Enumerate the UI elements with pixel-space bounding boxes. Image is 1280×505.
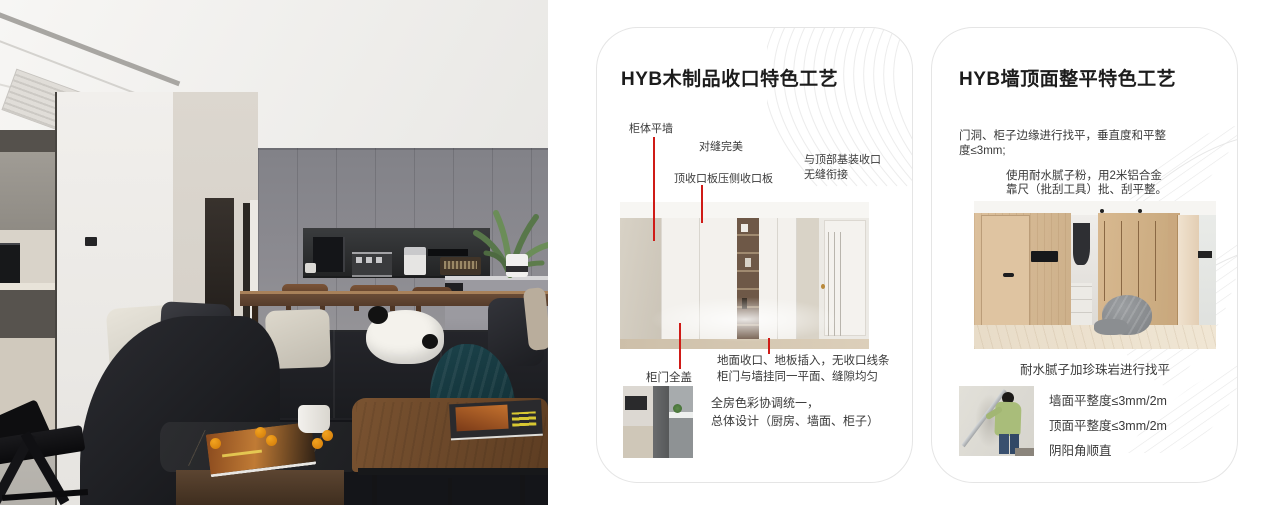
intercom-panel (1031, 251, 1058, 262)
thumb-floor (623, 426, 653, 458)
espresso-machine (313, 237, 345, 272)
door-handle (1003, 273, 1014, 277)
table-leg (372, 475, 377, 505)
kitchen-upper-cabinet (0, 152, 57, 230)
label-cabinet-flush-wall: 柜体平墙 (629, 120, 673, 136)
glass-partition (1199, 215, 1216, 331)
thumb-tv (625, 396, 647, 410)
spec-wall-flatness: 墙面平整度≤3mm/2m (1049, 390, 1167, 409)
living-room-photo (0, 0, 548, 505)
photo-caption: 耐水腻子加珍珠岩进行找平 (974, 359, 1216, 378)
infographic-page: HYB木制品收口特色工艺 柜体平墙 对缝完美 顶收口板压侧收口板 与顶部基装收口… (0, 0, 1280, 505)
light-switch (85, 237, 97, 246)
cups (356, 257, 386, 263)
thumb-lower-cabinet (669, 418, 693, 458)
label-ceiling-joint-line1: 与顶部基装收口 (804, 151, 881, 167)
interior-thumbnail (623, 386, 693, 458)
label-perfect-seam: 对缝完美 (699, 138, 743, 154)
table-leg (448, 478, 452, 505)
thumb-plant (673, 404, 682, 413)
panda-ear (368, 306, 388, 324)
drawer-unit (1071, 283, 1092, 325)
brass-knob (821, 284, 825, 289)
magazine-cover-image (455, 405, 508, 432)
annotation-line (653, 137, 655, 241)
panda-eye-patch (422, 334, 438, 349)
blanket-drape (1094, 319, 1128, 335)
table-frame (358, 468, 548, 475)
kumquat (312, 438, 323, 449)
kumquat (255, 427, 266, 438)
label-floor-closing-line2: 柜门与墙挂同一平面、缝隙均匀 (717, 368, 878, 384)
kumquat (210, 438, 221, 449)
summary-line2: 总体设计（厨房、墙面、柜子） (711, 412, 879, 429)
label-door-full-cover: 柜门全盖 (646, 369, 692, 385)
thumb-gray-column (653, 386, 669, 458)
hanging-clothes (1073, 223, 1090, 265)
wardrobe-render-image (620, 202, 869, 349)
worker-leg (999, 434, 1009, 454)
annotation-line (701, 185, 703, 223)
wall-sign (1198, 251, 1212, 258)
capsule-machine (404, 247, 426, 275)
thumb-floor (1015, 448, 1034, 456)
card-woodwork-process: HYB木制品收口特色工艺 柜体平墙 对缝完美 顶收口板压侧收口板 与顶部基装收口… (596, 27, 913, 483)
card1-title: HYB木制品收口特色工艺 (621, 64, 838, 91)
label-ceiling-joint-line2: 无缝衔接 (804, 166, 848, 182)
kitchen-lower-cabinet (0, 290, 55, 338)
spec-corners-straight: 阴阳角顺直 (1049, 440, 1112, 459)
paragraph1-line1: 门洞、柜子边缘进行找平，垂直度和平整 (959, 127, 1166, 143)
kumquat (322, 430, 333, 441)
label-top-closing-panel: 顶收口板压侧收口板 (674, 170, 773, 186)
cup-rack (352, 252, 392, 277)
summary-line1: 全房色彩协调统一， (711, 394, 819, 411)
card-leveling-process: HYB墙顶面整平特色工艺 门洞、柜子边缘进行找平，垂直度和平整 度≤3mm; 使… (931, 27, 1238, 483)
spec-ceiling-flatness: 顶面平整度≤3mm/2m (1049, 415, 1167, 434)
table-leg (520, 475, 525, 505)
shelf-decor (745, 258, 751, 267)
paragraph1-line2: 度≤3mm; (959, 142, 1006, 158)
white-mug (298, 405, 330, 433)
card2-title: HYB墙顶面整平特色工艺 (959, 64, 1176, 91)
open-door (1177, 215, 1200, 331)
kitchen-ceiling-reveal (0, 130, 58, 152)
kumquat (266, 435, 277, 446)
shelf-decor (741, 224, 748, 232)
magazine-cover-text (512, 411, 537, 426)
power-track (428, 249, 468, 256)
label-floor-closing-line1: 地面收口、地板插入，无收口线条 (717, 352, 890, 368)
coffee-table-base (176, 470, 344, 505)
coffee-bar-niche (303, 228, 490, 278)
annotation-line (679, 323, 681, 369)
vase-label (506, 266, 528, 272)
cup (305, 263, 316, 273)
paragraph2-line2: 靠尺（批刮工具）批、刮平整。 (1006, 181, 1167, 197)
kitchen-counter (0, 283, 58, 290)
worker-thumbnail (959, 386, 1034, 456)
hallway-photo (974, 201, 1216, 349)
wardrobe-handle-grooves (1104, 221, 1164, 301)
coffee-machine (0, 243, 20, 287)
